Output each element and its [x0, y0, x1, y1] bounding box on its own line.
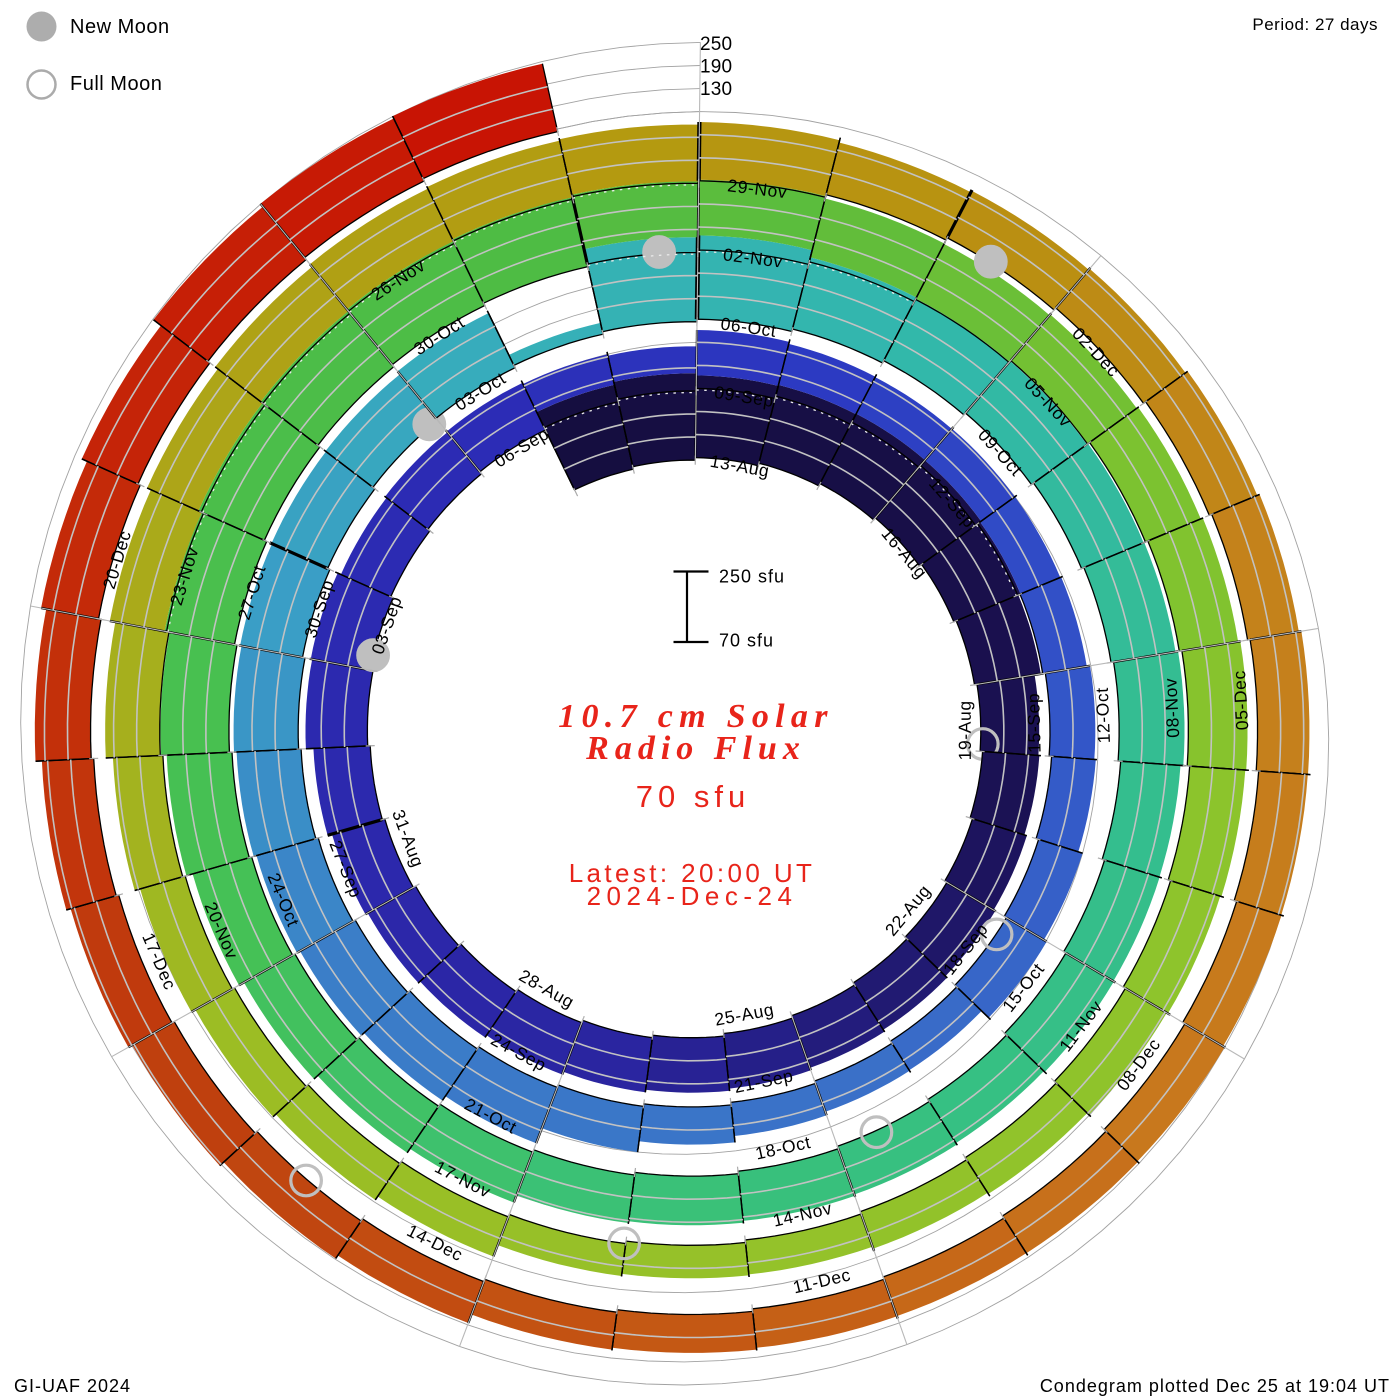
svg-text:70 sfu: 70 sfu	[719, 630, 774, 650]
svg-text:2024-Dec-24: 2024-Dec-24	[587, 881, 798, 911]
svg-text:250: 250	[700, 34, 732, 55]
svg-text:130: 130	[700, 79, 732, 100]
svg-text:GI-UAF 2024: GI-UAF 2024	[14, 1376, 131, 1396]
svg-text:New Moon: New Moon	[70, 16, 170, 38]
svg-text:70 sfu: 70 sfu	[636, 779, 750, 814]
svg-text:Radio Flux: Radio Flux	[585, 730, 806, 767]
svg-text:190: 190	[700, 57, 732, 78]
svg-text:15-Sep: 15-Sep	[1023, 693, 1044, 754]
svg-text:Period: 27 days: Period: 27 days	[1252, 15, 1378, 34]
svg-text:19-Aug: 19-Aug	[955, 700, 975, 760]
svg-text:Condegram plotted Dec 25 at 19: Condegram plotted Dec 25 at 19:04 UT	[1040, 1376, 1390, 1396]
svg-text:08-Nov: 08-Nov	[1160, 677, 1183, 738]
svg-text:Full Moon: Full Moon	[70, 73, 162, 95]
svg-text:12-Oct: 12-Oct	[1092, 687, 1114, 744]
svg-text:250 sfu: 250 sfu	[719, 566, 785, 586]
svg-text:05-Dec: 05-Dec	[1229, 670, 1252, 731]
